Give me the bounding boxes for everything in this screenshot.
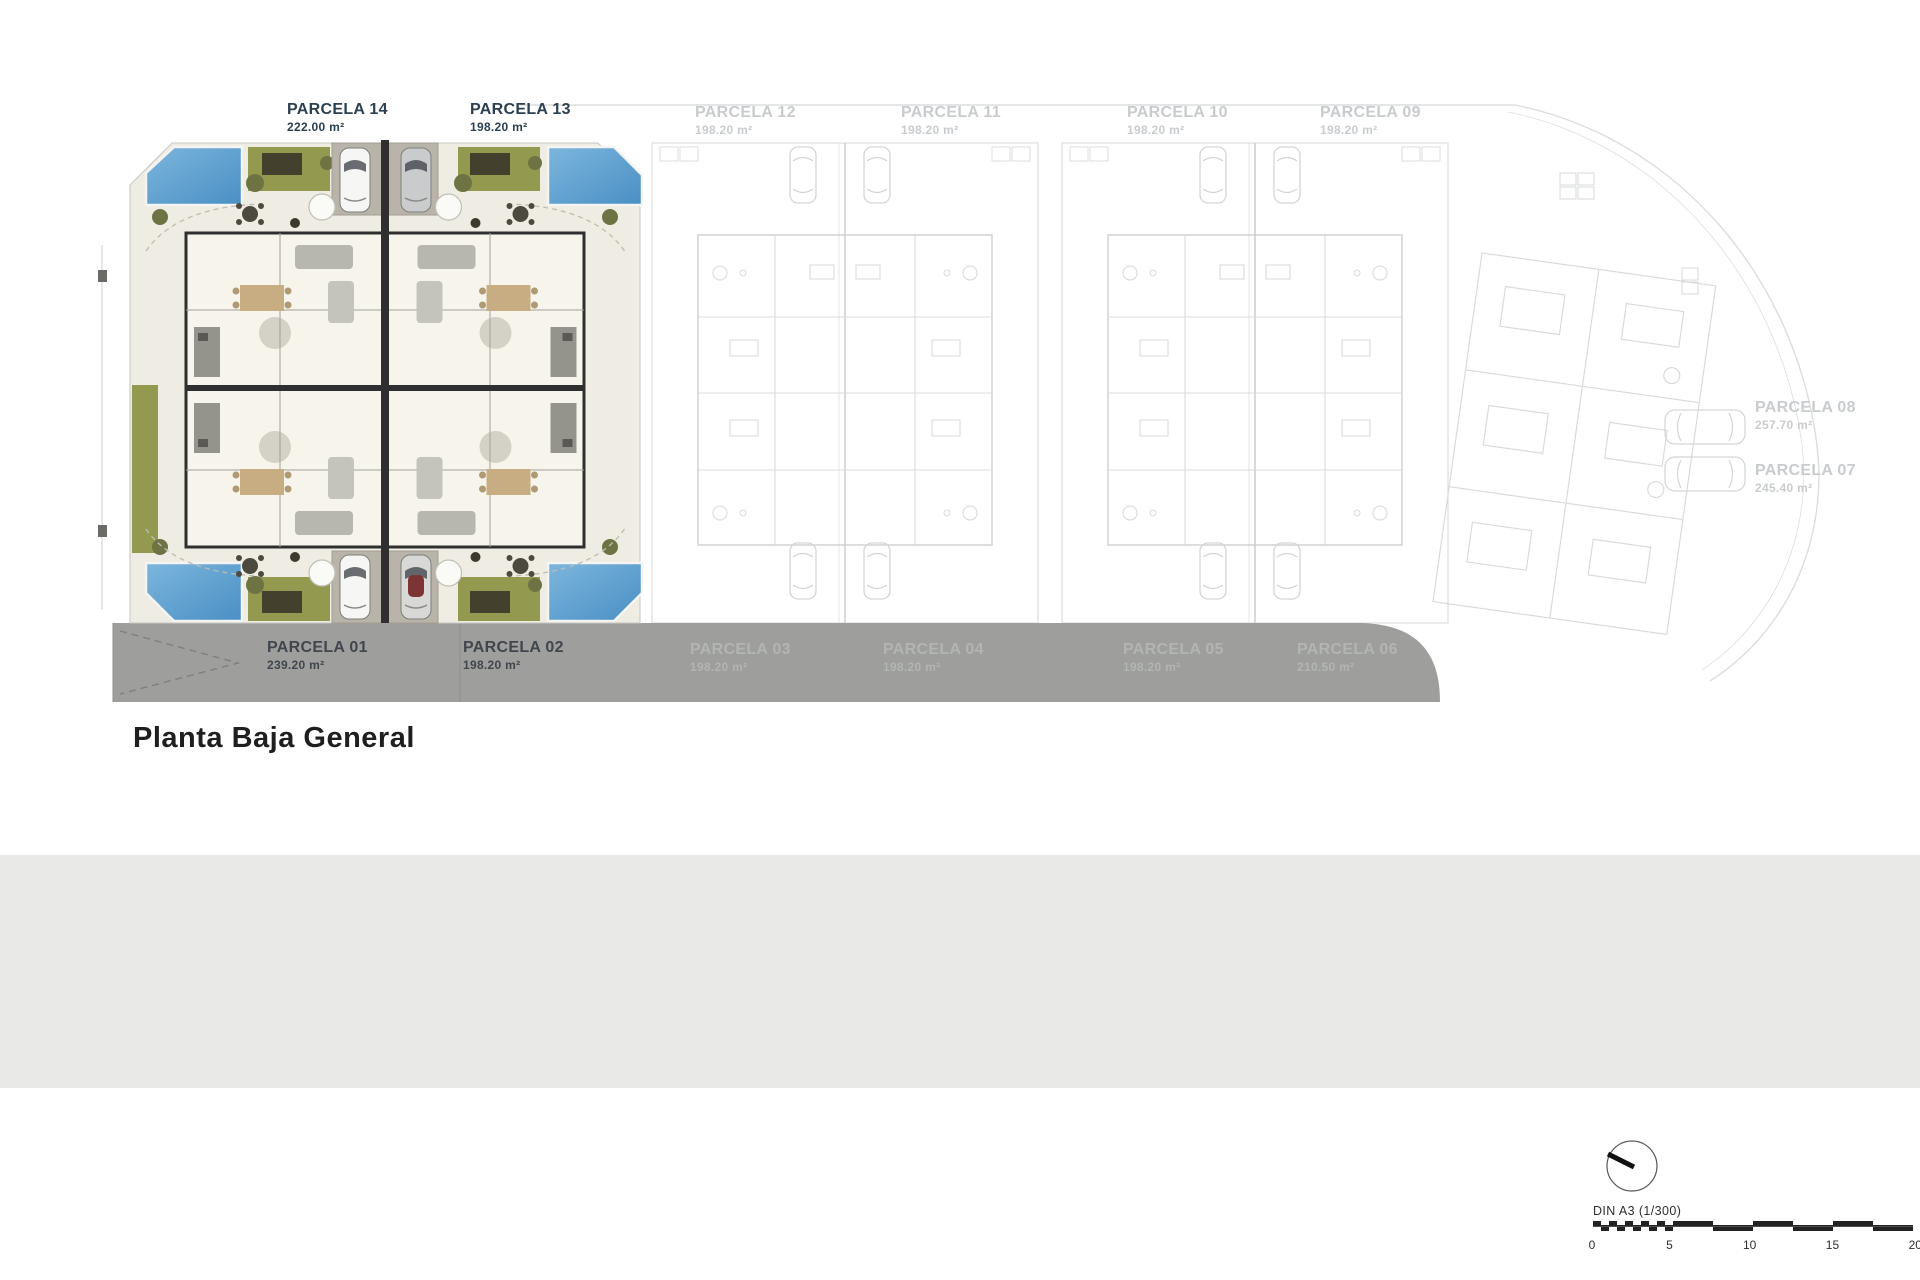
site-plan-drawing [90,85,1820,710]
scale-tick-0: 0 [1588,1238,1596,1252]
faded-duplex-block-2 [1062,143,1448,623]
parcel-label-11: PARCELA 11 198.20 m² [901,103,1001,138]
scale-tick-10: 10 [1743,1238,1756,1252]
scale-tick-20: 20 [1909,1238,1920,1252]
parcel-label-05: PARCELA 05 198.20 m² [1123,640,1224,675]
scale-tick-15: 15 [1826,1238,1839,1252]
scale-tick-5: 5 [1665,1238,1673,1252]
parcel-label-08: PARCELA 08 257.70 m² [1755,398,1856,433]
car-silver-top [401,148,431,212]
parcel-label-14: PARCELA 14 222.00 m² [287,100,388,135]
parcel-label-06: PARCELA 06 210.50 m² [1297,640,1398,675]
car-white-bottom [340,555,370,619]
highlighted-parcels-plan [130,140,642,623]
faded-parked-cars [1560,173,1745,491]
parcel-label-04: PARCELA 04 198.20 m² [883,640,984,675]
party-wall [381,140,389,623]
thumbnail-band [0,855,1920,1088]
car-maroon-bottom [401,555,431,619]
page-title: Planta Baja General [133,722,415,755]
parcel-label-01: PARCELA 01 239.20 m² [267,638,368,673]
scale-ticks: 0 5 10 15 20 [1588,1238,1920,1252]
north-arrow-compass [1598,1136,1668,1198]
parcel-label-09: PARCELA 09 198.20 m² [1320,103,1421,138]
parcel-label-10: PARCELA 10 198.20 m² [1127,103,1228,138]
car-white-top [340,148,370,212]
plan-sheet: PARCELA 14 222.00 m² PARCELA 13 198.20 m… [0,0,1920,1280]
scale-bar [1590,1216,1920,1236]
faded-duplex-block-1 [652,143,1038,623]
parcel-label-12: PARCELA 12 198.20 m² [695,103,796,138]
parcel-label-07: PARCELA 07 245.40 m² [1755,461,1856,496]
parcel-label-02: PARCELA 02 198.20 m² [463,638,564,673]
parcel-label-03: PARCELA 03 198.20 m² [690,640,791,675]
parcel-label-13: PARCELA 13 198.20 m² [470,100,571,135]
